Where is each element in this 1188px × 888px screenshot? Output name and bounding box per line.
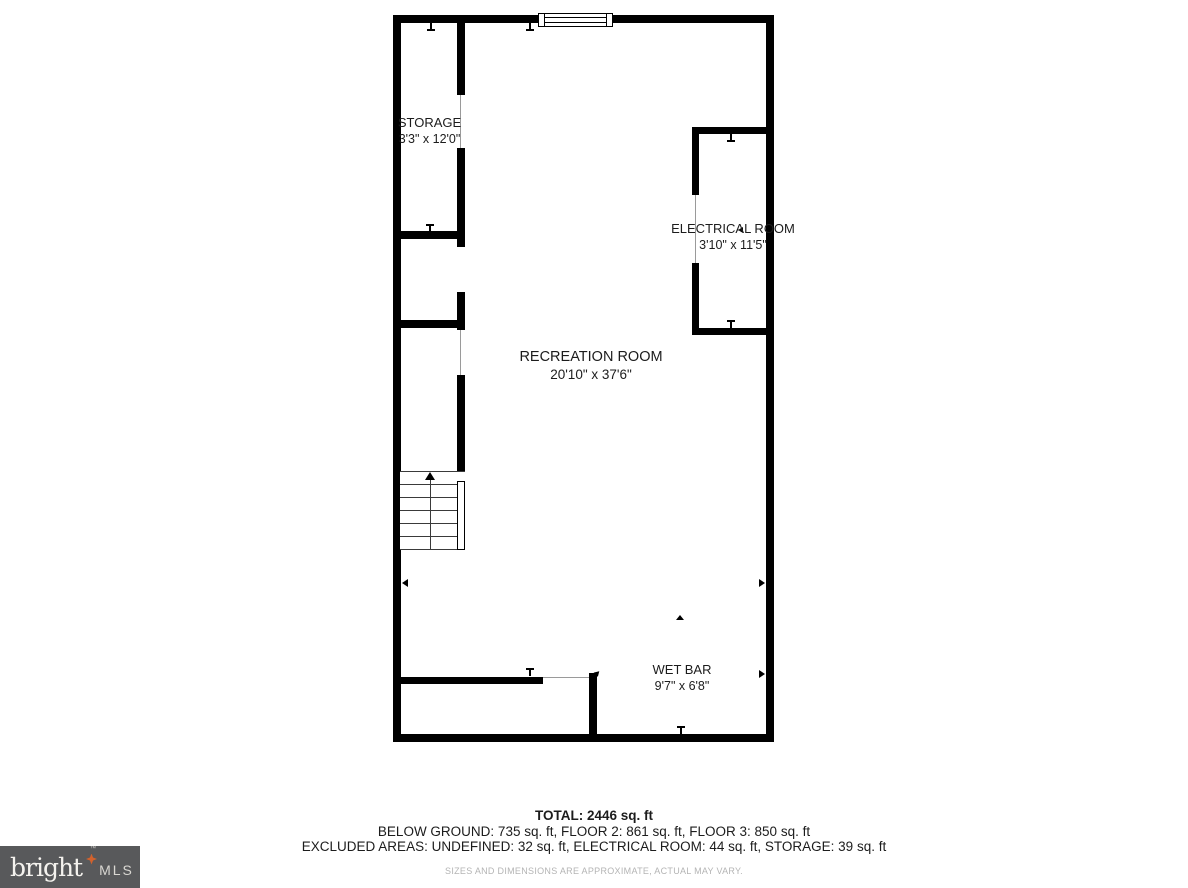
- room-name: ELECTRICAL ROOM: [653, 221, 813, 237]
- arrow-up-icon: [676, 615, 684, 620]
- room-name: WET BAR: [612, 662, 752, 678]
- stairs: [400, 471, 465, 550]
- electrical-wall-left-lower: [692, 263, 699, 335]
- electrical-wall-left-upper: [692, 127, 699, 195]
- room-label-wet-bar: WET BAR 9'7" x 6'8": [612, 662, 752, 694]
- logo-brand-text: bright ™: [10, 855, 94, 880]
- wet-bar-wall-left: [589, 673, 597, 735]
- logo-suffix-text: MLS: [99, 862, 134, 878]
- closet-wall-bottom: [401, 320, 465, 328]
- room-label-recreation: RECREATION ROOM 20'10" x 37'6": [491, 348, 691, 384]
- bright-mls-logo: bright ™ MLS: [0, 846, 140, 888]
- storage-wall-bottom: [401, 231, 465, 239]
- door-mark-icon: [676, 726, 686, 734]
- door-mark-icon: [425, 224, 435, 232]
- window-pane: [544, 17, 607, 23]
- room-name: RECREATION ROOM: [491, 348, 691, 366]
- logo-brand-word: bright: [10, 853, 82, 882]
- logo-trademark: ™: [90, 846, 95, 852]
- room-dimensions: 9'7" x 6'8": [612, 678, 752, 694]
- window-cap-right: [606, 14, 607, 26]
- bottom-room-wall-top: [401, 677, 543, 684]
- electrical-wall-top: [692, 127, 766, 134]
- wall-arrow-right-icon: [759, 670, 765, 678]
- room-dimensions: 3'10" x 11'5": [653, 237, 813, 253]
- wall-arrow-right-icon: [759, 579, 765, 587]
- door-mark-icon: [726, 134, 736, 142]
- electrical-wall-bottom: [692, 328, 766, 335]
- wall-arrow-left-icon: [402, 579, 408, 587]
- total-area-text: TOTAL: 2446 sq. ft: [0, 808, 1188, 824]
- floor-plan-page: STORAGE 3'3" x 12'0" ELECTRICAL ROOM 3'1…: [0, 0, 1188, 888]
- disclaimer-text: SIZES AND DIMENSIONS ARE APPROXIMATE, AC…: [0, 866, 1188, 876]
- logo-star-icon: [86, 854, 97, 865]
- outer-wall-bottom: [393, 734, 774, 742]
- door-mark-icon: [726, 320, 736, 328]
- floor-areas-text: BELOW GROUND: 735 sq. ft, FLOOR 2: 861 s…: [0, 825, 1188, 839]
- room-dimensions: 20'10" x 37'6": [491, 366, 691, 384]
- outer-wall-right: [766, 15, 774, 742]
- window-icon: [538, 13, 613, 27]
- room-dimensions: 3'3" x 12'0": [357, 131, 502, 147]
- door-mark-icon: [525, 23, 535, 31]
- storage-wall-upper: [457, 23, 465, 95]
- stairs-rail: [457, 481, 465, 550]
- stairs-up-arrow-icon: [425, 472, 435, 480]
- stairs-center-line: [430, 474, 431, 549]
- area-summary: TOTAL: 2446 sq. ft BELOW GROUND: 735 sq.…: [0, 808, 1188, 876]
- room-label-electrical: ELECTRICAL ROOM 3'10" x 11'5": [653, 221, 813, 253]
- closet-door-opening: [460, 330, 461, 375]
- window-cap-left: [544, 14, 545, 26]
- room-name: STORAGE: [357, 115, 502, 131]
- excluded-areas-text: EXCLUDED AREAS: UNDEFINED: 32 sq. ft, EL…: [0, 840, 1188, 854]
- stair-wall-right: [457, 375, 465, 481]
- door-mark-icon: [426, 23, 436, 31]
- door-mark-icon: [525, 668, 535, 676]
- bottom-room-door-opening: [543, 677, 590, 678]
- room-label-storage: STORAGE 3'3" x 12'0": [357, 115, 502, 147]
